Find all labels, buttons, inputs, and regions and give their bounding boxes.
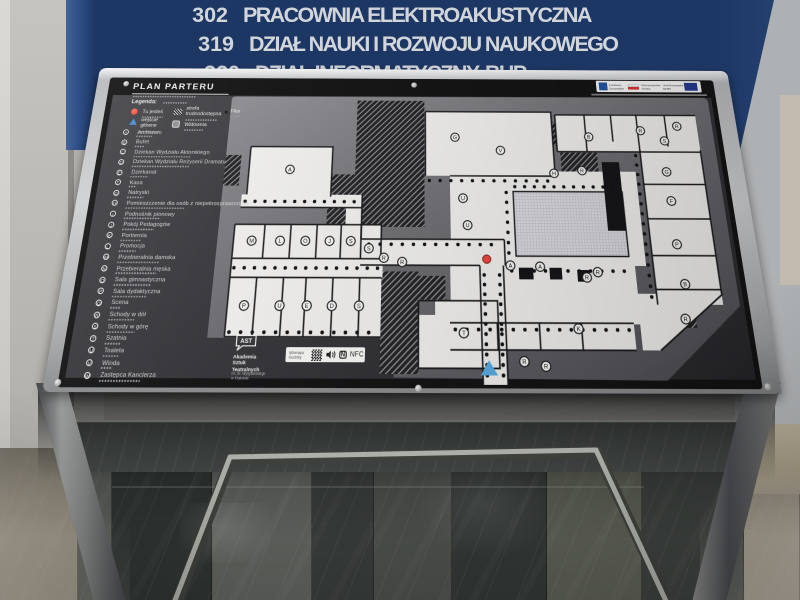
svg-text:AST: AST xyxy=(240,338,252,346)
